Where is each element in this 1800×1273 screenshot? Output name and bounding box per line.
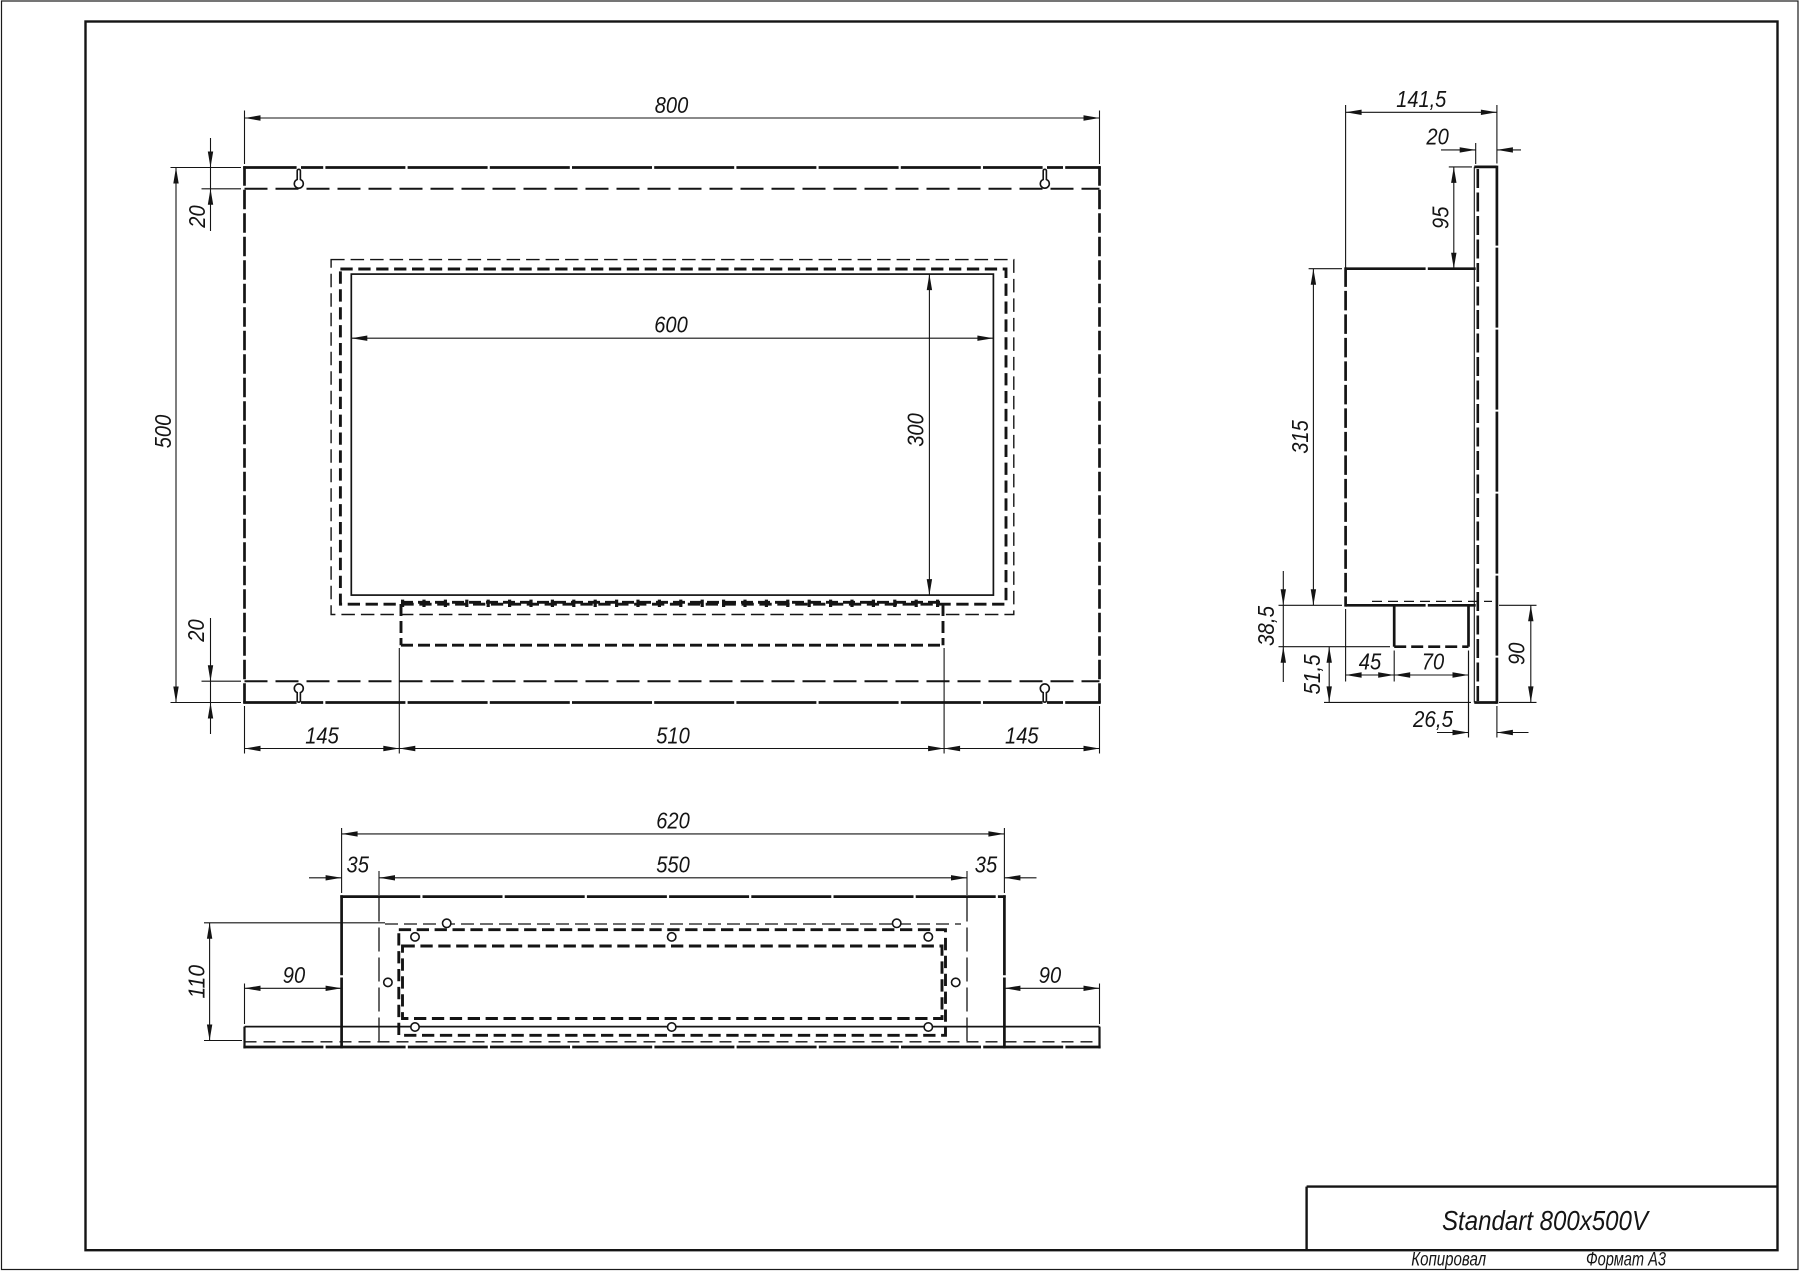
svg-text:141,5: 141,5 xyxy=(1396,86,1446,112)
svg-text:20: 20 xyxy=(184,205,210,228)
svg-text:45: 45 xyxy=(1359,649,1382,675)
svg-text:70: 70 xyxy=(1422,649,1445,675)
svg-text:620: 620 xyxy=(656,808,690,834)
svg-text:500: 500 xyxy=(150,415,176,449)
svg-text:38,5: 38,5 xyxy=(1253,606,1279,646)
svg-text:90: 90 xyxy=(1039,962,1062,988)
svg-text:20: 20 xyxy=(183,619,209,642)
svg-text:315: 315 xyxy=(1287,420,1313,454)
svg-text:20: 20 xyxy=(1426,124,1449,150)
svg-text:300: 300 xyxy=(903,413,929,447)
svg-text:800: 800 xyxy=(655,92,689,118)
svg-text:550: 550 xyxy=(656,851,690,877)
svg-text:90: 90 xyxy=(283,962,306,988)
svg-text:35: 35 xyxy=(347,851,370,877)
svg-text:51,5: 51,5 xyxy=(1299,654,1325,694)
svg-text:145: 145 xyxy=(305,723,339,749)
svg-text:110: 110 xyxy=(184,965,210,999)
svg-text:26,5: 26,5 xyxy=(1412,706,1453,732)
svg-text:Копировал: Копировал xyxy=(1411,1250,1486,1271)
svg-text:95: 95 xyxy=(1428,206,1454,229)
svg-text:145: 145 xyxy=(1005,723,1039,749)
svg-text:Формат А3: Формат А3 xyxy=(1586,1250,1666,1271)
svg-text:510: 510 xyxy=(656,723,690,749)
svg-text:90: 90 xyxy=(1504,642,1530,665)
svg-text:600: 600 xyxy=(654,312,688,338)
svg-text:Standart 800x500V: Standart 800x500V xyxy=(1442,1205,1650,1236)
svg-text:35: 35 xyxy=(975,851,998,877)
